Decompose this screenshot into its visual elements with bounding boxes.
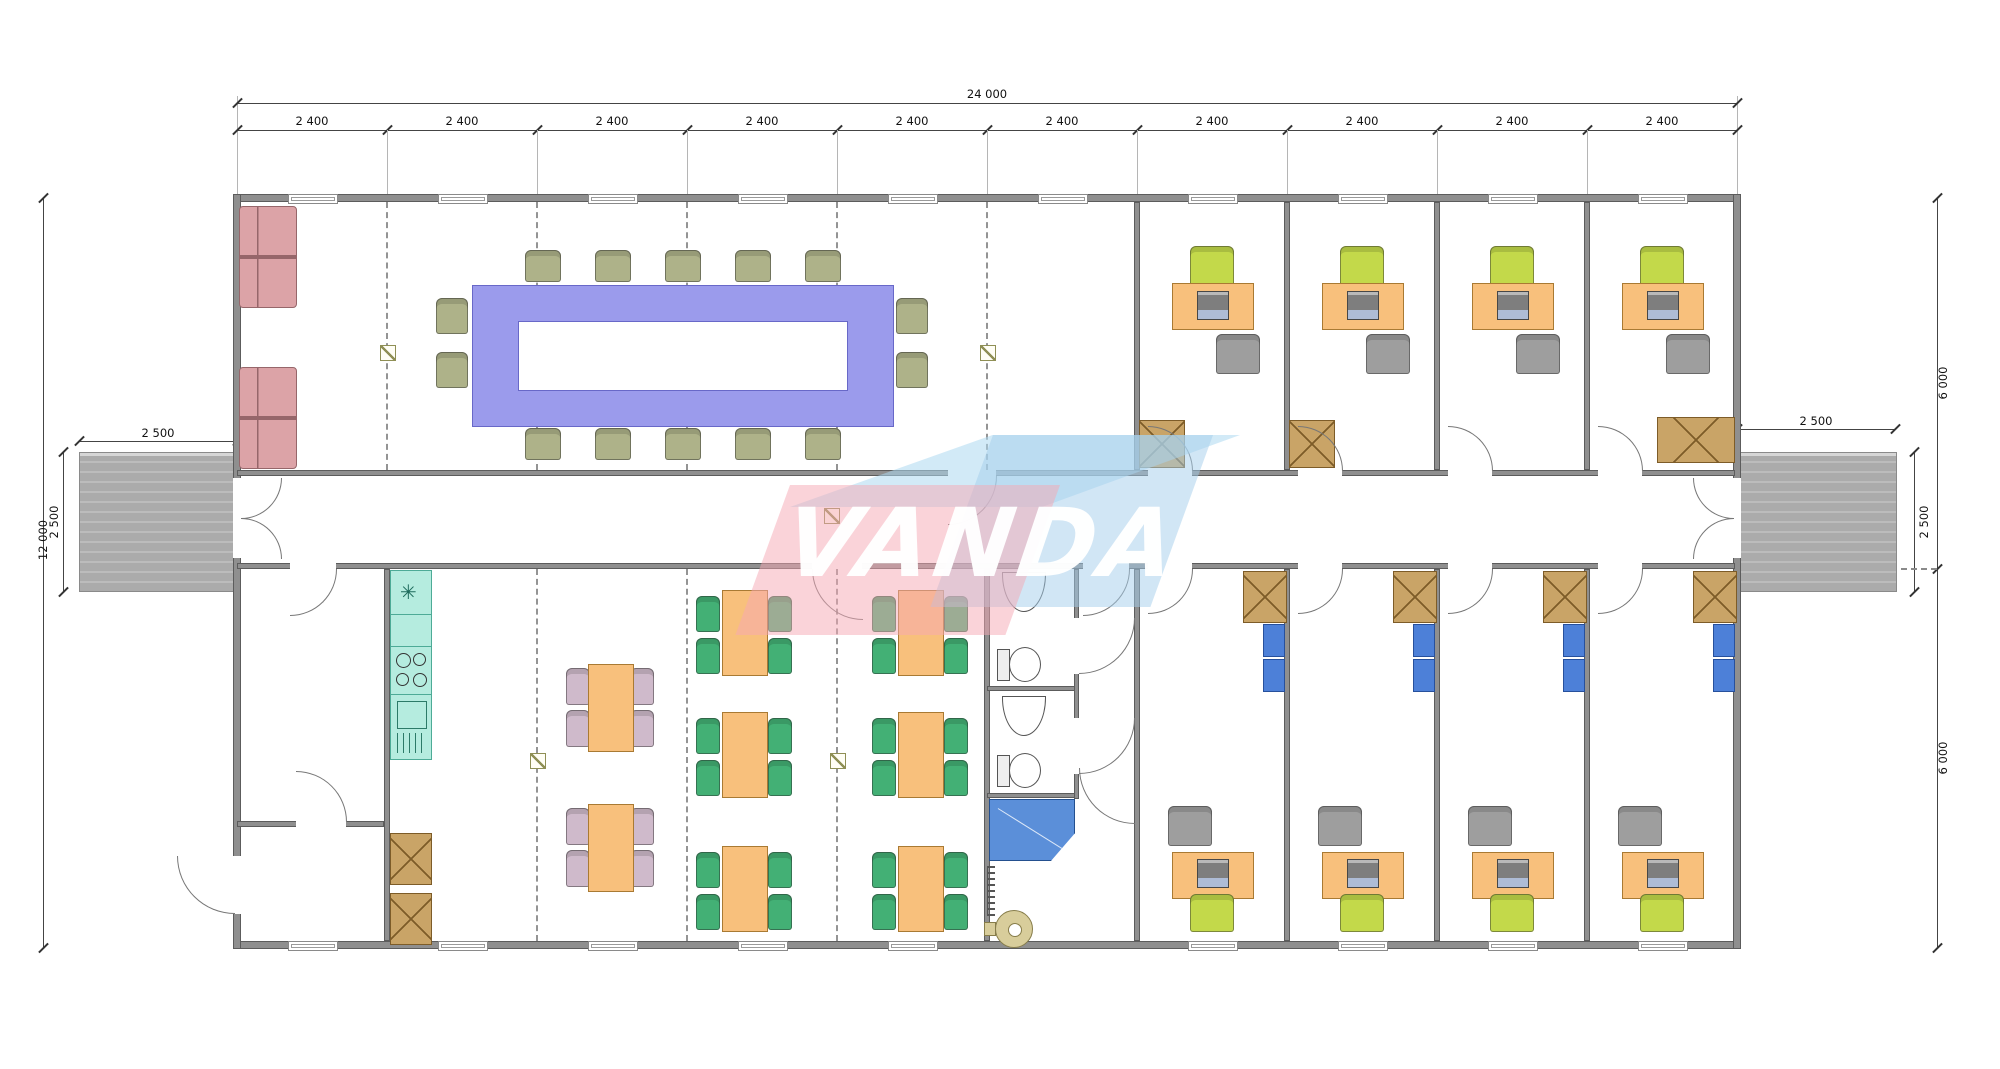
conference-table	[472, 285, 894, 427]
extension-line	[1437, 130, 1438, 194]
dining-table	[898, 846, 944, 932]
dining-chair	[944, 894, 968, 930]
dining-chair	[768, 718, 792, 754]
locker	[1413, 659, 1435, 692]
door-swing	[1298, 569, 1343, 614]
module-line	[686, 569, 688, 941]
window	[1488, 941, 1538, 951]
desk-printer	[1647, 859, 1679, 888]
stove-burner	[413, 653, 426, 666]
entry-door-swing	[241, 478, 282, 519]
extension-line	[387, 130, 388, 194]
conference-chair	[595, 428, 631, 460]
entry-door-swing	[1693, 478, 1734, 519]
wall-partition	[1584, 202, 1590, 470]
dining-table	[898, 712, 944, 798]
kitchen-stove	[390, 646, 432, 696]
conference-chair	[896, 298, 928, 334]
task-chair	[1490, 246, 1534, 286]
dining-chair	[872, 852, 896, 888]
dining-chair	[944, 638, 968, 674]
fridge-door	[397, 701, 427, 729]
stove-burner	[396, 673, 409, 686]
window	[888, 941, 938, 951]
storage-cabinet	[1393, 571, 1437, 623]
dimension-line-right-entry-depth	[1914, 452, 1915, 592]
dimension-label-right-entry-depth: 2 500	[1917, 482, 1931, 562]
dimension-label-right-upper: 6 000	[1936, 343, 1950, 423]
entry-ramp-left	[79, 452, 237, 592]
dimension-label-total-width: 24 000	[937, 87, 1037, 101]
desk-printer	[1347, 291, 1379, 320]
dining-chair	[768, 760, 792, 796]
door-swing	[1298, 426, 1343, 471]
window	[1638, 194, 1688, 204]
dimension-label-right-entry-width: 2 500	[1766, 414, 1866, 428]
task-chair	[1490, 894, 1534, 932]
dimension-label-module: 2 400	[1322, 114, 1402, 128]
locker	[1713, 659, 1735, 692]
dining-chair	[944, 760, 968, 796]
stove-burner	[413, 673, 427, 687]
dining-chair	[872, 894, 896, 930]
dining-chair	[872, 760, 896, 796]
shower	[989, 799, 1075, 861]
task-chair	[1190, 246, 1234, 286]
conference-chair	[525, 428, 561, 460]
dining-chair	[696, 638, 720, 674]
dining-chair	[944, 718, 968, 754]
grid-marker	[530, 753, 546, 769]
dimension-label-module: 2 400	[722, 114, 802, 128]
conference-chair	[665, 428, 701, 460]
cafe-table	[588, 804, 634, 892]
water-heater	[995, 910, 1033, 948]
wall-bathroom-divider	[987, 686, 1075, 691]
shower-diagonal	[998, 808, 1066, 851]
dimension-label-right-lower: 6 000	[1936, 718, 1950, 798]
kitchen-counter	[390, 614, 432, 648]
visitor-chair	[1216, 334, 1260, 374]
entry-door-swing	[241, 518, 282, 559]
locker	[1563, 659, 1585, 692]
storage-cabinet	[390, 893, 432, 945]
desk-printer	[1647, 291, 1679, 320]
window	[1338, 194, 1388, 204]
toilet-bowl	[1009, 647, 1041, 682]
locker	[1263, 624, 1285, 657]
door-swing	[290, 569, 337, 616]
desk-printer	[1197, 291, 1229, 320]
wall-partition	[1134, 569, 1140, 941]
storage-cabinet	[1657, 417, 1735, 463]
desk-printer	[1347, 859, 1379, 888]
conference-chair	[735, 428, 771, 460]
conference-chair	[436, 298, 468, 334]
visitor-chair	[1468, 806, 1512, 846]
fridge-vents	[397, 733, 425, 753]
door-swing	[296, 771, 347, 822]
door-swing	[177, 856, 235, 914]
door-swing	[1598, 569, 1643, 614]
dining-chair	[872, 718, 896, 754]
entry-door-opening	[1733, 478, 1741, 558]
locker	[1413, 624, 1435, 657]
conference-chair	[805, 428, 841, 460]
extension-line	[1287, 130, 1288, 194]
dimension-line-left-entry-depth	[63, 452, 64, 592]
dimension-label-module: 2 400	[872, 114, 952, 128]
watermark-logo-text: VANDA	[779, 492, 1224, 597]
sink-asterisk-icon: ✳	[400, 580, 417, 604]
window	[1338, 941, 1388, 951]
dimension-line-total-width	[237, 103, 1737, 104]
kitchen-sink: ✳	[390, 570, 432, 616]
window	[438, 941, 488, 951]
extension-line	[537, 130, 538, 194]
dimension-label-left-entry-depth: 2 500	[47, 482, 61, 562]
task-chair	[1340, 246, 1384, 286]
entry-ramp-right	[1737, 452, 1897, 592]
window	[588, 941, 638, 951]
dining-chair	[768, 852, 792, 888]
visitor-chair	[1618, 806, 1662, 846]
cafe-chair	[566, 808, 590, 845]
visitor-chair	[1366, 334, 1410, 374]
dimension-line-right-total	[1937, 198, 1938, 948]
conference-table-opening	[518, 321, 848, 391]
window	[1488, 194, 1538, 204]
water-heater-core	[1008, 923, 1022, 937]
dining-chair	[872, 638, 896, 674]
entry-door-opening	[233, 478, 241, 558]
visitor-chair	[1318, 806, 1362, 846]
dimension-label-module: 2 400	[422, 114, 502, 128]
dining-table	[722, 712, 768, 798]
locker	[1713, 624, 1735, 657]
conference-chair	[525, 250, 561, 282]
desk-printer	[1197, 859, 1229, 888]
task-chair	[1640, 246, 1684, 286]
task-chair	[1340, 894, 1384, 932]
floor-plan-canvas: 24 000 2 400 2 400 2 400 2 400 2 400 2 4…	[0, 0, 2000, 1069]
conference-chair	[896, 352, 928, 388]
dining-chair	[696, 718, 720, 754]
module-line	[986, 202, 988, 470]
dimension-label-left-entry-width: 2 500	[108, 426, 208, 440]
window	[588, 194, 638, 204]
grid-marker	[980, 345, 996, 361]
conference-chair	[665, 250, 701, 282]
window	[738, 941, 788, 951]
desk-printer	[1497, 291, 1529, 320]
dimension-label-module: 2 400	[572, 114, 652, 128]
entry-door-swing	[1693, 518, 1734, 559]
window	[438, 194, 488, 204]
cafe-table	[588, 664, 634, 752]
storage-cabinet	[1543, 571, 1587, 623]
cafe-chair	[566, 710, 590, 747]
dimension-label-module: 2 400	[1022, 114, 1102, 128]
extension-line	[1137, 130, 1138, 194]
task-chair	[1640, 894, 1684, 932]
dining-chair	[696, 596, 720, 632]
window	[738, 194, 788, 204]
window	[1188, 194, 1238, 204]
sofa	[239, 367, 297, 469]
dining-chair	[696, 894, 720, 930]
door-swing	[1448, 426, 1493, 471]
desk-printer	[1497, 859, 1529, 888]
kitchen-fridge	[390, 694, 432, 760]
window	[888, 194, 938, 204]
radiator	[987, 866, 995, 916]
storage-cabinet	[1693, 571, 1737, 623]
conference-chair	[735, 250, 771, 282]
visitor-chair	[1666, 334, 1710, 374]
storage-cabinet	[390, 833, 432, 885]
cafe-chair	[566, 850, 590, 887]
dimension-label-module: 2 400	[272, 114, 352, 128]
visitor-chair	[1168, 806, 1212, 846]
door-swing	[1079, 768, 1135, 824]
dimension-line-left-entry-width	[79, 441, 237, 442]
water-heater-nozzle	[984, 922, 996, 936]
cafe-chair	[566, 668, 590, 705]
extension-line	[1587, 130, 1588, 194]
extension-line	[837, 130, 838, 194]
extension-line	[687, 130, 688, 194]
door-swing	[1598, 426, 1643, 471]
task-chair	[1190, 894, 1234, 932]
dimension-label-module: 2 400	[1172, 114, 1252, 128]
extension-line	[987, 130, 988, 194]
module-line	[386, 202, 388, 470]
door-swing	[1079, 718, 1135, 774]
window	[288, 194, 338, 204]
dining-chair	[696, 852, 720, 888]
conference-chair	[436, 352, 468, 388]
window	[288, 941, 338, 951]
dining-chair	[696, 760, 720, 796]
dining-chair	[768, 638, 792, 674]
visitor-chair	[1516, 334, 1560, 374]
door-swing	[1448, 569, 1493, 614]
dining-chair	[768, 894, 792, 930]
grid-marker	[380, 345, 396, 361]
locker	[1563, 624, 1585, 657]
storage-cabinet	[1243, 571, 1287, 623]
dimension-line-right-entry-width	[1737, 429, 1895, 430]
dining-table	[722, 846, 768, 932]
locker	[1263, 659, 1285, 692]
extension-line	[237, 96, 238, 195]
grid-marker	[830, 753, 846, 769]
dimension-label-module: 2 400	[1622, 114, 1702, 128]
extension-line	[1737, 96, 1738, 195]
conference-chair	[805, 250, 841, 282]
wc-sink	[1002, 696, 1046, 736]
window	[1038, 194, 1088, 204]
toilet-bowl	[1009, 753, 1041, 788]
stove-burner	[396, 653, 411, 668]
window	[1638, 941, 1688, 951]
conference-chair	[595, 250, 631, 282]
wall-partition	[1434, 202, 1440, 470]
door-swing	[1079, 618, 1135, 674]
window	[1188, 941, 1238, 951]
dimension-label-module: 2 400	[1472, 114, 1552, 128]
dining-chair	[944, 852, 968, 888]
sofa	[239, 206, 297, 308]
wall-bathroom-divider	[987, 793, 1075, 798]
